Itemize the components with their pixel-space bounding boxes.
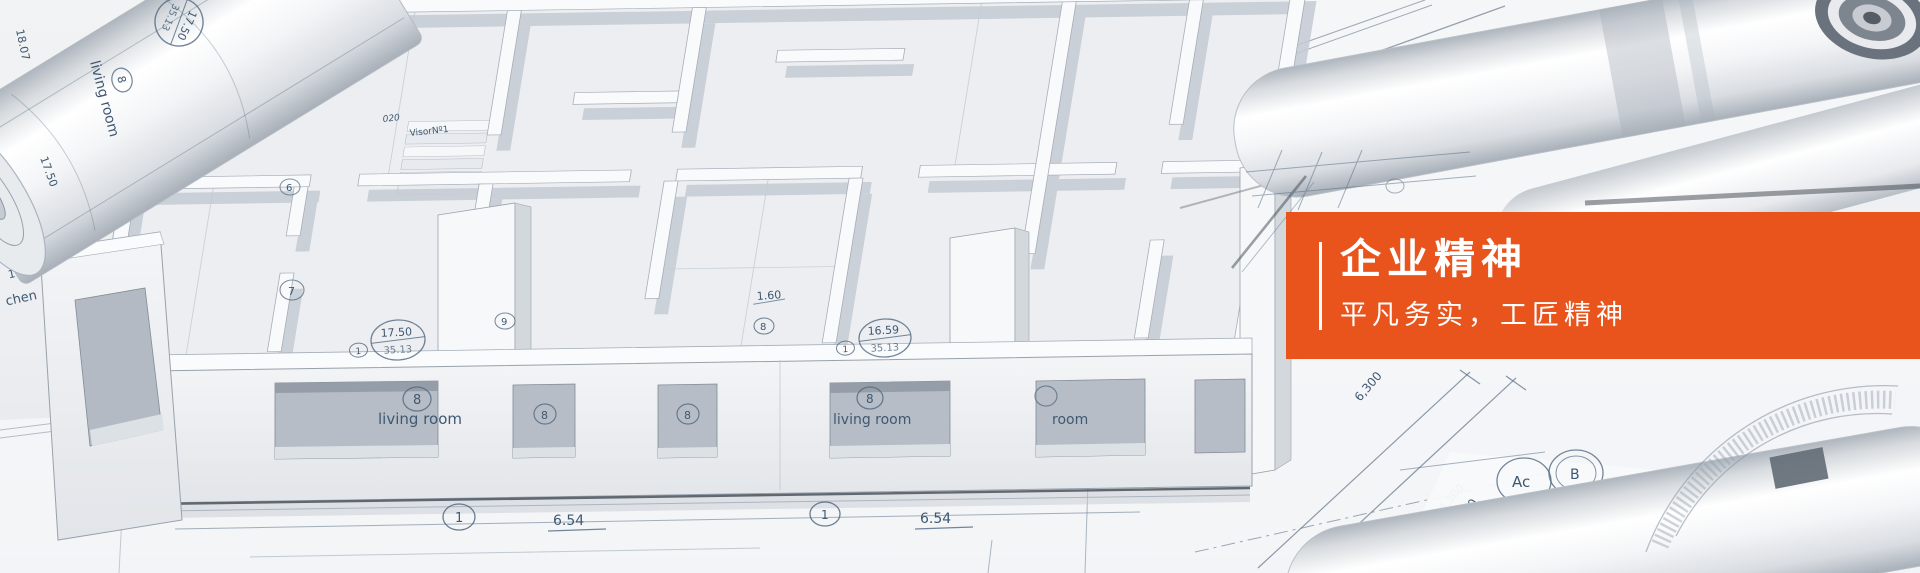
slogan-title: 企业精神 [1340, 237, 1528, 281]
living-room-label-1: living room [378, 410, 462, 428]
svg-text:8: 8 [760, 322, 766, 333]
svg-text:35.13: 35.13 [870, 342, 899, 354]
svg-text:1: 1 [842, 345, 848, 355]
left-wing [40, 232, 182, 540]
dim-1-60-label: 1.60 [756, 288, 781, 303]
svg-text:B: B [1570, 467, 1580, 483]
room-label: room [1052, 412, 1088, 428]
svg-text:1: 1 [355, 347, 361, 357]
svg-text:8: 8 [684, 409, 691, 422]
svg-text:Ac: Ac [1512, 473, 1530, 491]
dim-6-54-label-2: 6.54 [920, 511, 951, 527]
svg-text:8: 8 [866, 392, 874, 406]
svg-text:6: 6 [286, 183, 292, 194]
svg-text:1: 1 [455, 511, 463, 526]
svg-text:16.59: 16.59 [867, 323, 899, 338]
svg-text:8: 8 [541, 409, 548, 422]
dim-6-54-label-1: 6.54 [553, 513, 584, 529]
svg-text:8: 8 [413, 393, 421, 408]
svg-text:9: 9 [501, 317, 507, 328]
svg-text:1: 1 [821, 508, 829, 522]
front-facade: 8 living room 8 8 8 living room room [88, 338, 1252, 512]
slogan-panel: 企业精神 平凡务实，工匠精神 [1286, 212, 1920, 359]
svg-text:7: 7 [288, 285, 295, 298]
slogan-subtitle: 平凡务实，工匠精神 [1340, 301, 1628, 331]
dim-020-label: 020 [382, 113, 400, 125]
hero-banner: 1.25 chen 0550 6 [0, 0, 1920, 573]
svg-text:35.13: 35.13 [383, 344, 412, 356]
living-room-label-2: living room [833, 412, 911, 428]
svg-text:17.50: 17.50 [380, 325, 412, 340]
divider-bar [1319, 242, 1322, 330]
